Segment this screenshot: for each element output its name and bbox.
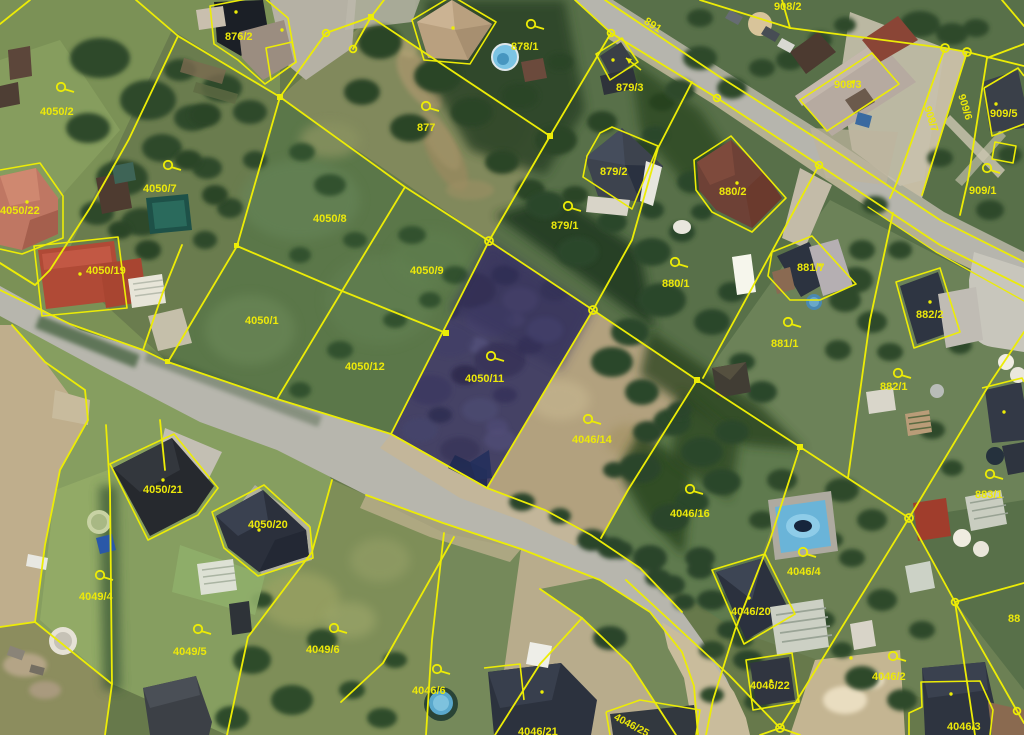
svg-text:880/2: 880/2 <box>719 186 747 198</box>
svg-text:4046/2: 4046/2 <box>872 671 906 683</box>
svg-text:876/2: 876/2 <box>225 31 253 43</box>
svg-text:4050/1: 4050/1 <box>245 315 279 327</box>
svg-text:4050/2: 4050/2 <box>40 106 74 118</box>
svg-text:879/3: 879/3 <box>616 82 644 94</box>
svg-text:880/1: 880/1 <box>662 278 690 290</box>
svg-text:877: 877 <box>417 122 435 134</box>
svg-text:4050/9: 4050/9 <box>410 265 444 277</box>
svg-text:4049/5: 4049/5 <box>173 646 207 658</box>
svg-text:4046/14: 4046/14 <box>572 434 613 446</box>
svg-text:4046/3: 4046/3 <box>947 721 981 733</box>
svg-text:4050/22: 4050/22 <box>0 205 40 217</box>
svg-text:4046/4: 4046/4 <box>787 566 822 578</box>
svg-text:881/1: 881/1 <box>771 338 799 350</box>
svg-text:883/1: 883/1 <box>975 489 1003 501</box>
svg-text:4046/22: 4046/22 <box>750 680 790 692</box>
svg-text:882/2: 882/2 <box>916 309 944 321</box>
svg-text:4046/20: 4046/20 <box>731 606 771 618</box>
svg-text:878/1: 878/1 <box>511 41 539 53</box>
svg-text:881/7: 881/7 <box>797 262 825 274</box>
svg-text:4050/12: 4050/12 <box>345 361 385 373</box>
svg-text:4046/6: 4046/6 <box>412 685 446 697</box>
svg-text:4049/4: 4049/4 <box>79 591 114 603</box>
svg-text:909/5: 909/5 <box>990 108 1018 120</box>
svg-text:4050/19: 4050/19 <box>86 265 126 277</box>
svg-text:88: 88 <box>1008 613 1020 625</box>
svg-text:879/1: 879/1 <box>551 220 579 232</box>
svg-text:908/2: 908/2 <box>774 1 802 13</box>
svg-text:4046/16: 4046/16 <box>670 508 710 520</box>
svg-text:879/2: 879/2 <box>600 166 628 178</box>
svg-text:4050/7: 4050/7 <box>143 183 177 195</box>
svg-text:4050/8: 4050/8 <box>313 213 347 225</box>
svg-text:882/1: 882/1 <box>880 381 908 393</box>
svg-text:4046/21: 4046/21 <box>518 726 558 735</box>
svg-text:4050/20: 4050/20 <box>248 519 288 531</box>
svg-text:4049/6: 4049/6 <box>306 644 340 656</box>
svg-text:909/1: 909/1 <box>969 185 997 197</box>
svg-text:4050/21: 4050/21 <box>143 484 183 496</box>
svg-text:908/3: 908/3 <box>834 79 862 91</box>
svg-text:4050/11: 4050/11 <box>465 373 504 385</box>
